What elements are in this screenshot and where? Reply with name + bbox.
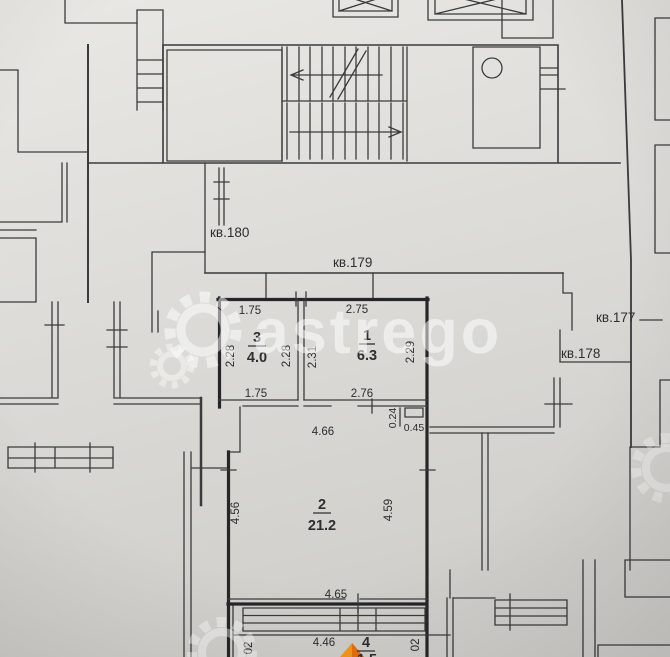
floor-plan-photo: кв.180 кв.179 кв.177 кв.178 3 4.0 1 6.3 … [0, 0, 670, 657]
photo-vignette [0, 0, 670, 657]
